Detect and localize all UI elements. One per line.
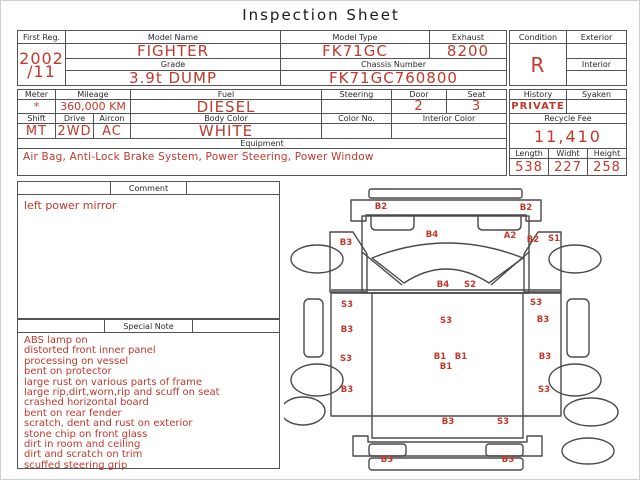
fuel-label: Fuel bbox=[131, 90, 322, 100]
side-guard-right bbox=[567, 299, 589, 357]
width-value: 227 bbox=[549, 159, 588, 176]
damage-code-b3: B3 bbox=[442, 417, 454, 427]
rear-crossmember bbox=[353, 436, 542, 456]
sheet-title: Inspection Sheet bbox=[1, 6, 640, 24]
condition-value: R bbox=[510, 44, 567, 86]
meter-value: * bbox=[18, 100, 56, 114]
first-reg-month: /11 bbox=[27, 65, 56, 78]
comment-text: left power mirror bbox=[18, 195, 279, 216]
aircon-value: AC bbox=[94, 124, 131, 139]
equipment-value: Air Bag, Anti-Lock Brake System, Power S… bbox=[18, 149, 507, 176]
damage-code-b4: B4 bbox=[426, 230, 438, 240]
damage-code-b4: B4 bbox=[437, 280, 449, 290]
damage-code-b3: B3 bbox=[537, 315, 549, 325]
comment-label: Comment bbox=[110, 182, 187, 195]
cab-corner-left bbox=[371, 216, 414, 230]
special-note-line: scuffed steering grip bbox=[24, 461, 279, 471]
body-color-value: WHITE bbox=[131, 124, 322, 139]
damage-code-s3: S3 bbox=[497, 417, 509, 427]
recycle-fee-label: Recycle Fee bbox=[510, 114, 627, 124]
front-wheel-left bbox=[291, 245, 343, 273]
recycle-fee-section: Recycle Fee 11,410 bbox=[509, 114, 627, 149]
door-value: 2 bbox=[392, 100, 447, 114]
condition-table: Condition Exterior R Interior bbox=[509, 30, 627, 86]
first-reg-value: 2002 /11 bbox=[18, 44, 66, 86]
cab-corner-right bbox=[478, 216, 521, 230]
damage-code-b1: B1 bbox=[440, 362, 452, 372]
shift-value: MT bbox=[18, 124, 56, 139]
dimensions-section: Length Widht Height 538 227 258 bbox=[509, 149, 627, 176]
mileage-value: 360,000 KM bbox=[56, 100, 131, 114]
comment-header: Comment bbox=[18, 182, 279, 195]
width-label: Widht bbox=[549, 149, 588, 159]
chassis-number-value: FK71GC760800 bbox=[281, 71, 507, 86]
interior-color-value bbox=[392, 124, 507, 139]
spec-table-row2: Shift Drive Aircon Body Color Color No. … bbox=[17, 114, 507, 139]
drive-label: Drive bbox=[56, 114, 94, 124]
grade-label: Grade bbox=[66, 59, 281, 71]
steering-label: Steering bbox=[322, 90, 392, 100]
color-no-label: Color No. bbox=[322, 114, 392, 124]
meter-label: Meter bbox=[18, 90, 56, 100]
height-label: Height bbox=[588, 149, 627, 159]
damage-code-b3: B3 bbox=[381, 455, 393, 465]
damage-code-b3: B3 bbox=[340, 238, 352, 248]
steering-value bbox=[322, 100, 392, 114]
inspection-sheet: Inspection Sheet First Reg. Model Name M… bbox=[0, 0, 640, 480]
rear-wheel-left-2 bbox=[284, 397, 325, 425]
seat-label: Seat bbox=[447, 90, 507, 100]
damage-code-b2: B2 bbox=[520, 203, 532, 213]
exterior-value bbox=[567, 44, 627, 59]
special-note-box: Special Note ABS lamp ondistorted front … bbox=[17, 319, 280, 469]
condition-label: Condition bbox=[510, 31, 567, 44]
spare-tire bbox=[562, 438, 614, 464]
rear-wheel-right-2 bbox=[564, 398, 618, 426]
damage-code-s1: S1 bbox=[548, 234, 560, 244]
interior-value bbox=[567, 71, 627, 86]
model-type-label: Model Type bbox=[281, 31, 430, 44]
length-value: 538 bbox=[510, 159, 549, 176]
exhaust-value: 8200 bbox=[430, 44, 507, 59]
a-pillar-right bbox=[491, 252, 529, 285]
damage-code-b3: B3 bbox=[341, 325, 353, 335]
drive-value: 2WD bbox=[56, 124, 94, 139]
recycle-fee-value: 11,410 bbox=[510, 124, 627, 149]
rear-wheel-left-1 bbox=[291, 364, 343, 396]
history-label: History bbox=[510, 90, 567, 100]
damage-code-b2: B2 bbox=[375, 202, 387, 212]
damage-code-s3: S3 bbox=[341, 300, 353, 310]
rear-wheel-right-1 bbox=[549, 364, 601, 396]
damage-code-s3: S3 bbox=[440, 316, 452, 326]
spec-table-row1: Meter Mileage Fuel Steering Door Seat * … bbox=[17, 89, 507, 114]
syaken-value bbox=[567, 100, 627, 114]
mileage-label: Mileage bbox=[56, 90, 131, 100]
damage-code-b2: B2 bbox=[527, 235, 539, 245]
body-color-label: Body Color bbox=[131, 114, 322, 124]
syaken-label: Syaken bbox=[567, 90, 627, 100]
length-label: Length bbox=[510, 149, 549, 159]
first-reg-label: First Reg. bbox=[18, 31, 66, 44]
a-pillar-left bbox=[362, 252, 402, 285]
special-note-label: Special Note bbox=[104, 320, 192, 333]
exterior-label: Exterior bbox=[567, 31, 627, 44]
equipment-label: Equipment bbox=[18, 139, 507, 149]
special-note-header: Special Note bbox=[18, 320, 279, 333]
model-name-label: Model Name bbox=[66, 31, 281, 44]
comment-box: Comment left power mirror bbox=[17, 181, 280, 319]
damage-code-b3: B3 bbox=[502, 455, 514, 465]
color-no-value bbox=[322, 124, 392, 139]
front-visor-bar bbox=[369, 189, 522, 198]
aircon-label: Aircon bbox=[94, 114, 131, 124]
interior-color-label: Interior Color bbox=[392, 114, 507, 124]
registration-table: First Reg. Model Name Model Type Exhaust… bbox=[17, 30, 507, 86]
height-value: 258 bbox=[588, 159, 627, 176]
damage-code-b3: B3 bbox=[341, 385, 353, 395]
door-label: Door bbox=[392, 90, 447, 100]
damage-code-s2: S2 bbox=[464, 280, 476, 290]
shift-label: Shift bbox=[18, 114, 56, 124]
exhaust-label: Exhaust bbox=[430, 31, 507, 44]
interior-label: Interior bbox=[567, 59, 627, 71]
chassis-number-label: Chassis Number bbox=[281, 59, 507, 71]
side-guard-left bbox=[304, 299, 323, 357]
front-wheel-right bbox=[549, 245, 601, 273]
damage-code-s3: S3 bbox=[538, 385, 550, 395]
damage-code-b1: B1 bbox=[434, 352, 446, 362]
model-name-value: FIGHTER bbox=[66, 44, 281, 59]
special-note-body: ABS lamp ondistorted front inner panelpr… bbox=[18, 333, 279, 471]
grade-value: 3.9t DUMP bbox=[66, 71, 281, 86]
history-table: History Syaken PRIVATE bbox=[509, 89, 627, 114]
damage-code-a2: A2 bbox=[504, 231, 517, 241]
damage-diagram: B2B2B4A2B2S1B3B4S2S3S3S3B3B3S3B3B1B1B1B3… bbox=[284, 184, 634, 478]
equipment-section: Equipment Air Bag, Anti-Lock Brake Syste… bbox=[17, 139, 507, 176]
damage-code-b1: B1 bbox=[455, 352, 467, 362]
history-value: PRIVATE bbox=[510, 100, 567, 114]
damage-code-s3: S3 bbox=[530, 298, 542, 308]
seat-value: 3 bbox=[447, 100, 507, 114]
damage-code-b3: B3 bbox=[539, 352, 551, 362]
damage-code-s3: S3 bbox=[340, 354, 352, 364]
fuel-value: DIESEL bbox=[131, 100, 322, 114]
model-type-value: FK71GC bbox=[281, 44, 430, 59]
